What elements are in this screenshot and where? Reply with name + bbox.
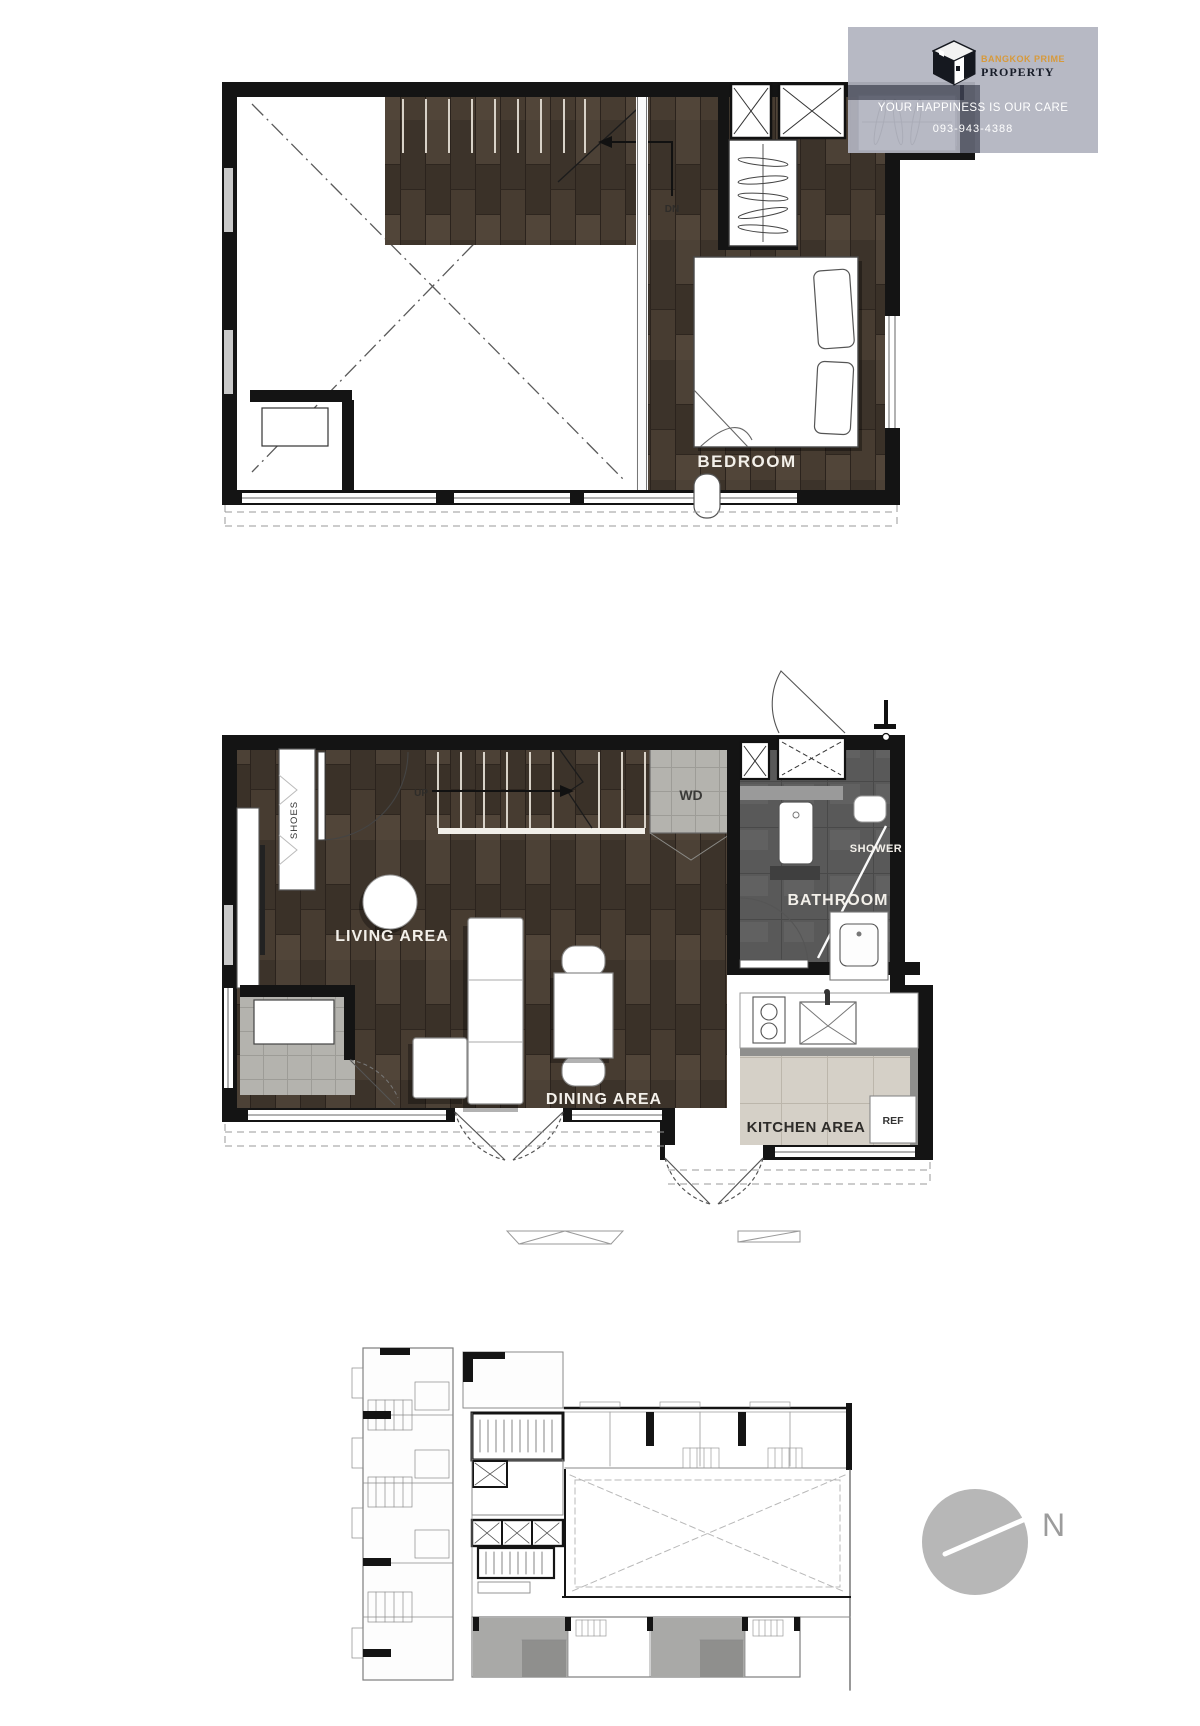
void-ledge-box <box>262 408 328 446</box>
canopy-outlines <box>507 1231 800 1244</box>
north-label: N <box>1042 1507 1065 1543</box>
shower-label: SHOWER <box>850 843 903 855</box>
upper-corridor-floor <box>385 97 636 245</box>
ottoman <box>413 1038 467 1098</box>
dining-table <box>554 973 613 1058</box>
lower-floor-plan: UP WD <box>222 671 933 1204</box>
refrigerator: REF <box>870 1096 916 1143</box>
pillow <box>814 361 854 435</box>
wall-showthrough <box>960 85 980 153</box>
dining-chair <box>562 946 605 976</box>
floorplan-sheet: DN <box>0 0 1200 1726</box>
agency-watermark: BANGKOK PRIME PROPERTY YOUR HAPPINESS IS… <box>848 27 1098 153</box>
stairs-down-label: DN <box>665 204 679 215</box>
kitchen-area-label: KITCHEN AREA <box>747 1119 866 1136</box>
phone-number: 093-943-4388 <box>848 123 1098 135</box>
upper-balcony-dashes <box>225 505 897 528</box>
key-stair-core <box>472 1413 563 1460</box>
refrigerator-label: REF <box>883 1115 905 1127</box>
living-area-label: LIVING AREA <box>335 928 449 945</box>
slogan-text: YOUR HAPPINESS IS OUR CARE <box>848 102 1098 114</box>
shaft-access-door <box>772 671 845 733</box>
bathroom-label: BATHROOM <box>787 892 888 909</box>
bedroom-label: BEDROOM <box>697 452 796 471</box>
brand-name-property: PROPERTY <box>981 65 1055 80</box>
brand-name: BANGKOK PRIME <box>981 54 1065 64</box>
key-plan: N <box>352 1231 1065 1690</box>
bedroom-door-leaf <box>694 474 720 518</box>
wall-showthrough <box>848 85 964 100</box>
stair-nosing <box>438 828 645 834</box>
floorplan-drawing: DN <box>0 0 1200 1726</box>
sink-basin <box>840 924 878 966</box>
north-compass: N <box>922 1489 1065 1595</box>
stairs-up-label: UP <box>414 788 428 799</box>
key-right-wing <box>565 1402 852 1470</box>
dining-area-label: DINING AREA <box>546 1091 662 1108</box>
bathroom-door-leaf <box>740 960 808 968</box>
key-left-wing <box>352 1348 453 1680</box>
toilet <box>779 802 813 864</box>
void-railing <box>636 97 648 490</box>
bedroom-closet <box>729 140 797 246</box>
cube-logo-icon <box>932 40 976 86</box>
shower-tray <box>854 796 886 822</box>
key-core <box>463 1352 563 1593</box>
bed <box>694 257 862 451</box>
pillow <box>813 269 854 349</box>
bathroom-shafts <box>741 671 845 779</box>
bathroom-shelf <box>740 786 843 800</box>
shower-head <box>884 700 888 726</box>
kitchen-counter <box>740 989 918 1048</box>
tv <box>260 845 265 955</box>
shoes-cabinet: SHOES <box>279 749 315 890</box>
shoes-label: SHOES <box>289 801 300 839</box>
washer-dryer-label: WD <box>679 787 702 803</box>
kitchen-sink <box>800 1002 856 1044</box>
